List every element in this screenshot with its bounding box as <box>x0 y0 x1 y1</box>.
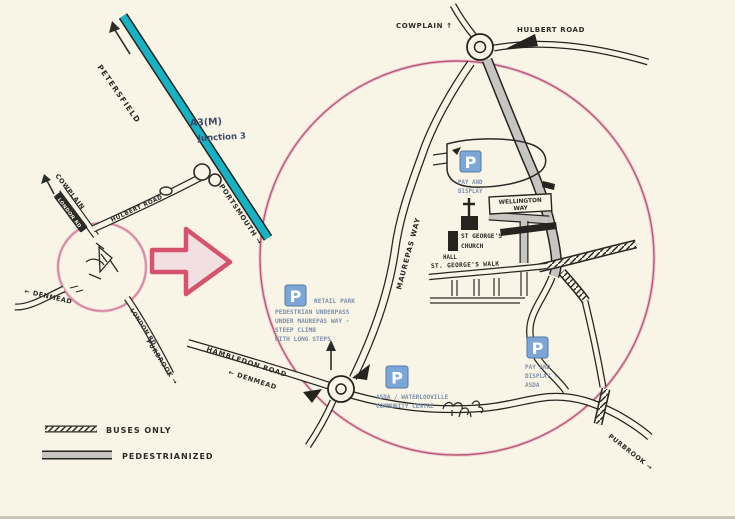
map-drawing: LONDON RD PETERSFIELD A3(M) Junction 3 C… <box>0 0 735 516</box>
wellington-way-label-2: WAY <box>513 205 528 212</box>
southwest-exit-road <box>308 401 333 446</box>
asda-cc-caption-1: ASDA / WATERLOOVILLE <box>376 394 449 401</box>
maurepas-way-road <box>353 63 471 378</box>
petersfield-label: PETERSFIELD <box>95 63 142 125</box>
pay-display-caption-1: PAY AND <box>458 180 483 186</box>
hulbert-road-overview-label: HULBERT ROAD <box>110 195 164 224</box>
asda-pay-caption-2: DISPLAY - <box>525 373 558 380</box>
parking-icon-retail: P <box>285 285 306 306</box>
purbrook-overview-label: PURBROOK → <box>144 338 178 386</box>
asda-pay-caption-1: PAY AND <box>525 364 551 371</box>
asda-pay-caption-3: ASDA <box>525 382 540 389</box>
church-icon <box>461 198 478 230</box>
cowplain-road-detail <box>453 5 474 36</box>
svg-text:P: P <box>391 369 403 388</box>
hulbert-road-detail-label: HULBERT ROAD <box>517 26 585 34</box>
cowplain-detail-label: COWPLAIN ↑ <box>396 22 453 30</box>
cowplain-arrow-icon <box>41 174 54 194</box>
hall-label: HALL <box>443 255 457 261</box>
a3m-label: A3(M) <box>190 116 223 129</box>
junction-label: Junction 3 <box>197 131 247 144</box>
north-arrow-icon <box>326 340 336 370</box>
wellington-way-box: WELLINGTON WAY <box>489 194 552 214</box>
svg-text:P: P <box>465 153 477 172</box>
scanned-map-page: LONDON RD PETERSFIELD A3(M) Junction 3 C… <box>0 0 735 519</box>
legend-buses-label: BUSES ONLY <box>106 426 172 435</box>
legend: BUSES ONLY PEDESTRIANIZED <box>42 426 214 461</box>
underpass-note-2: UNDER MAUREPAS WAY - <box>275 318 350 325</box>
east-side-road <box>585 301 603 387</box>
asda-cc-caption-2: COMMUNITY CENTRE <box>376 403 434 410</box>
legend-pedestrianized-label: PEDESTRIANIZED <box>122 452 214 461</box>
church-label-2: CHURCH <box>461 243 484 250</box>
parking-icon-asda-cc: P <box>386 366 408 388</box>
church-label-1: ST GEORGE'S <box>461 233 502 240</box>
parking-icon-asda-pay: P <box>527 337 548 358</box>
retail-park-label: RETAIL PARK <box>314 298 355 305</box>
zoom-arrow-icon <box>152 229 230 294</box>
hall-icon <box>448 231 458 251</box>
town-sketch <box>70 243 118 292</box>
underpass-note-1: PEDESTRIAN UNDERPASS <box>275 309 350 316</box>
bottom-roundabout <box>328 376 354 402</box>
parking-icon-pay-display: P <box>460 151 481 172</box>
underpass-note-3: STEEP CLIMB <box>275 327 316 334</box>
svg-text:P: P <box>532 339 544 358</box>
top-roundabout <box>467 34 493 60</box>
underpass-note-4: WITH LONG STEPS <box>275 336 331 343</box>
buses-only-stub <box>562 272 586 301</box>
pay-display-caption-2: DISPLAY <box>458 189 483 195</box>
svg-text:P: P <box>290 287 302 306</box>
